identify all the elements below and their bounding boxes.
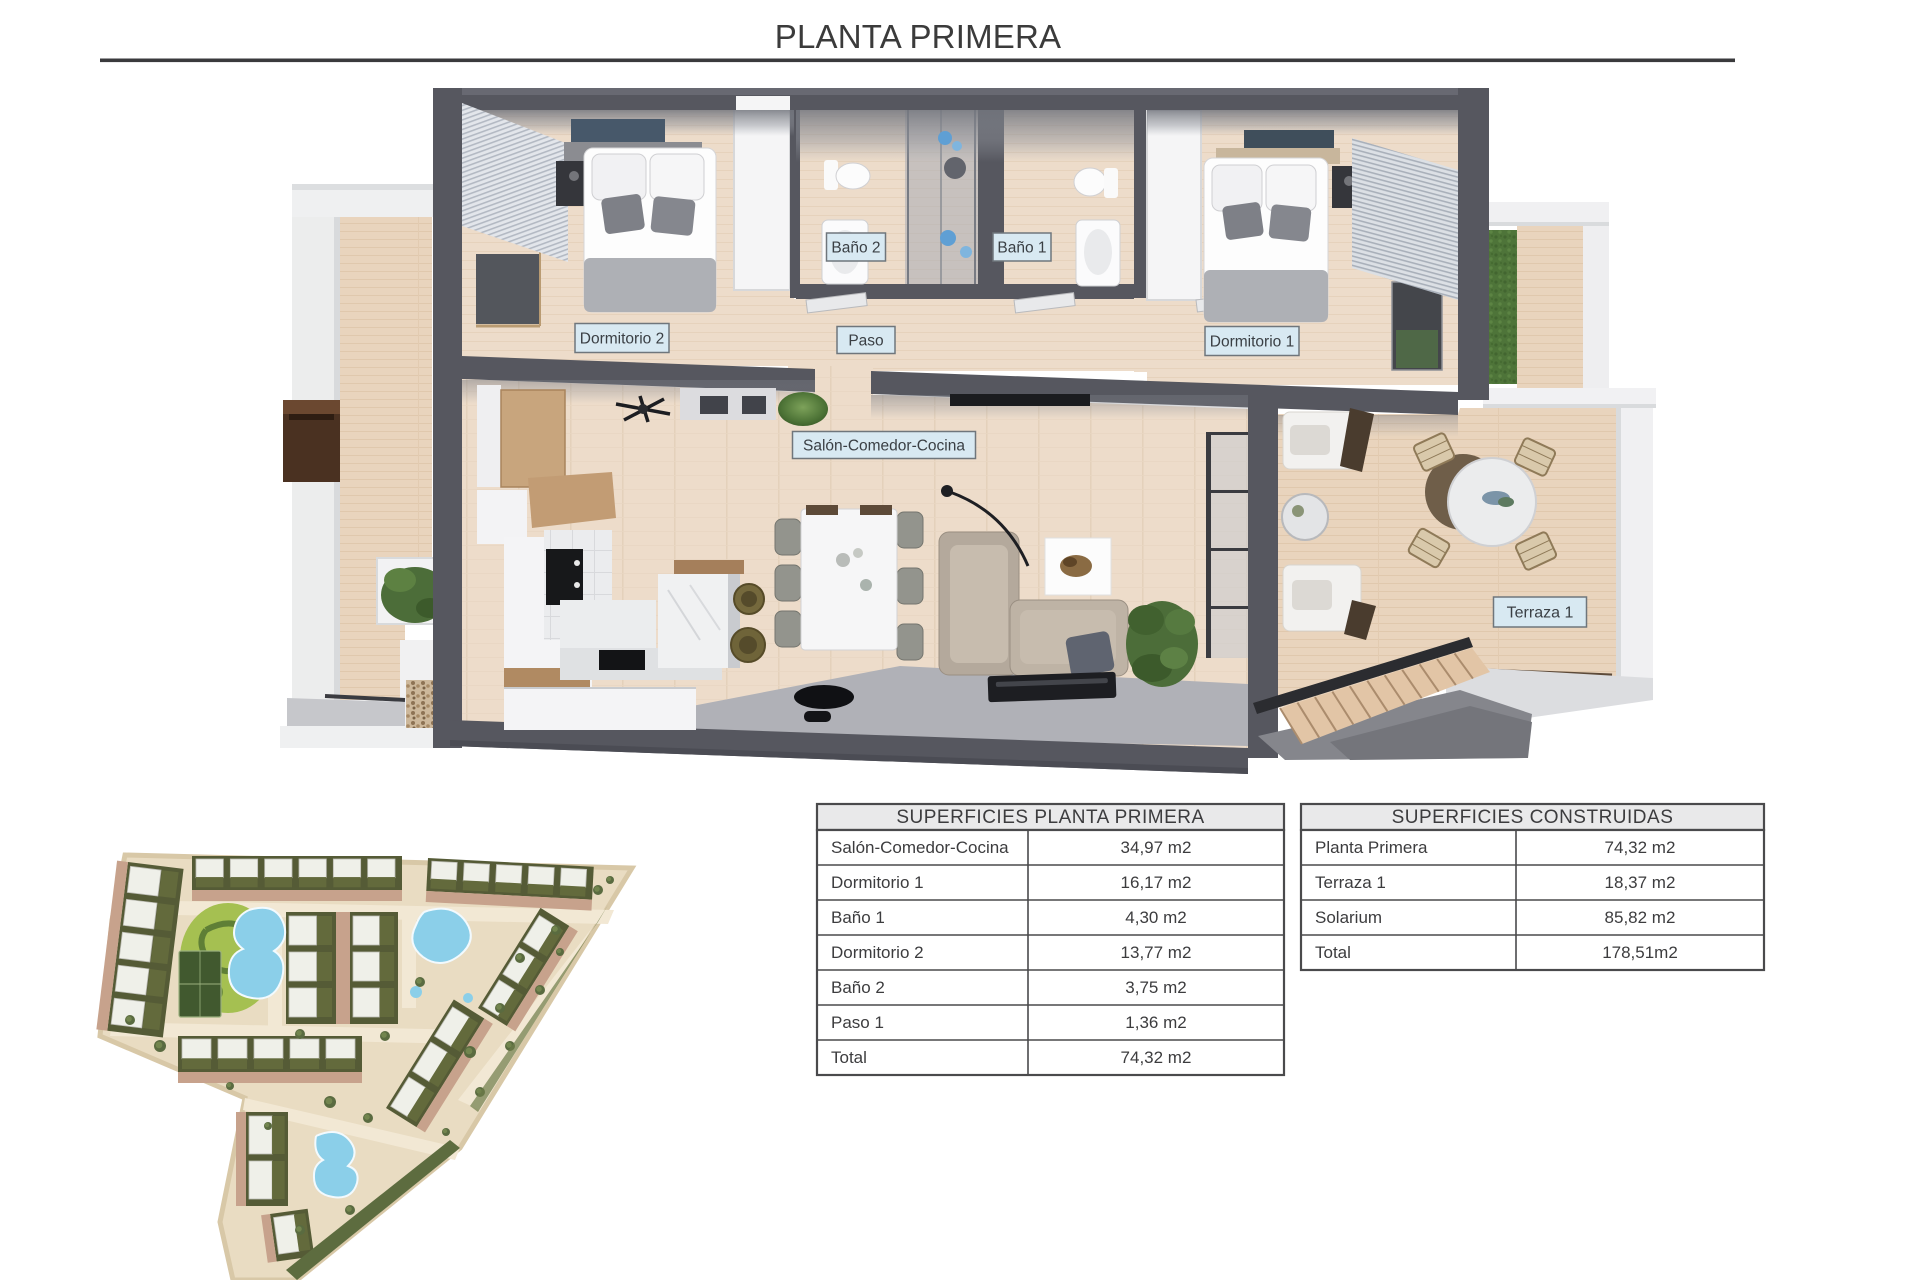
svg-text:Total: Total bbox=[831, 1048, 867, 1067]
svg-text:Dormitorio 2: Dormitorio 2 bbox=[580, 330, 664, 347]
svg-text:74,32 m2: 74,32 m2 bbox=[1605, 838, 1676, 857]
svg-text:SUPERFICIES CONSTRUIDAS: SUPERFICIES CONSTRUIDAS bbox=[1392, 807, 1674, 828]
svg-text:4,30 m2: 4,30 m2 bbox=[1125, 908, 1186, 927]
svg-text:Baño 1: Baño 1 bbox=[831, 908, 885, 927]
svg-text:3,75 m2: 3,75 m2 bbox=[1125, 978, 1186, 997]
svg-text:1,36 m2: 1,36 m2 bbox=[1125, 1013, 1186, 1032]
svg-text:Paso 1: Paso 1 bbox=[831, 1013, 884, 1032]
svg-text:85,82 m2: 85,82 m2 bbox=[1605, 908, 1676, 927]
svg-text:Dormitorio 1: Dormitorio 1 bbox=[831, 873, 924, 892]
svg-text:SUPERFICIES PLANTA PRIMERA: SUPERFICIES PLANTA PRIMERA bbox=[896, 807, 1204, 828]
svg-text:Baño 1: Baño 1 bbox=[997, 239, 1046, 256]
svg-text:16,17 m2: 16,17 m2 bbox=[1121, 873, 1192, 892]
svg-text:Terraza 1: Terraza 1 bbox=[1315, 873, 1386, 892]
svg-text:Solarium: Solarium bbox=[1315, 908, 1382, 927]
svg-text:Terraza 1: Terraza 1 bbox=[1507, 605, 1574, 622]
svg-text:34,97 m2: 34,97 m2 bbox=[1121, 838, 1192, 857]
svg-text:Baño 2: Baño 2 bbox=[831, 978, 885, 997]
svg-text:Paso: Paso bbox=[848, 332, 883, 349]
svg-text:Planta Primera: Planta Primera bbox=[1315, 838, 1428, 857]
svg-text:PLANTA PRIMERA: PLANTA PRIMERA bbox=[775, 18, 1061, 55]
svg-text:18,37 m2: 18,37 m2 bbox=[1605, 873, 1676, 892]
svg-text:74,32 m2: 74,32 m2 bbox=[1121, 1048, 1192, 1067]
svg-text:13,77 m2: 13,77 m2 bbox=[1121, 943, 1192, 962]
svg-text:Dormitorio 1: Dormitorio 1 bbox=[1210, 333, 1294, 350]
svg-text:178,51m2: 178,51m2 bbox=[1602, 943, 1678, 962]
svg-text:Salón-Comedor-Cocina: Salón-Comedor-Cocina bbox=[803, 437, 965, 454]
svg-text:Total: Total bbox=[1315, 943, 1351, 962]
svg-text:Baño 2: Baño 2 bbox=[831, 239, 880, 256]
svg-text:Dormitorio 2: Dormitorio 2 bbox=[831, 943, 924, 962]
svg-text:Salón-Comedor-Cocina: Salón-Comedor-Cocina bbox=[831, 838, 1009, 857]
